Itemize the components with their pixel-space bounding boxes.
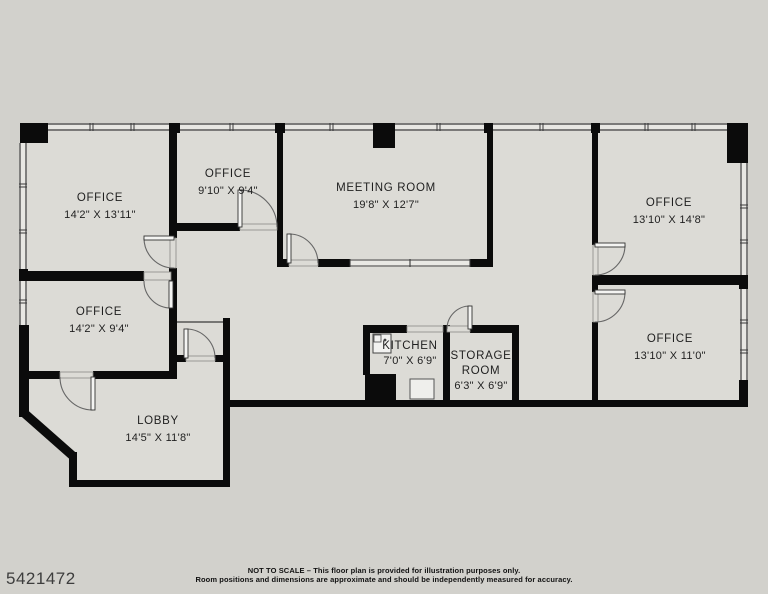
room-label-kitchen: KITCHEN 7'0" X 6'9" <box>367 339 453 369</box>
room-dims: 9'10" X 9'4" <box>158 183 298 200</box>
room-label-office-4: OFFICE 14'2" X 9'4" <box>29 304 169 338</box>
room-label-lobby: LOBBY 14'5" X 11'8" <box>98 413 218 447</box>
room-dims: 14'2" X 13'11" <box>30 207 170 224</box>
disclaimer: NOT TO SCALE – This floor plan is provid… <box>0 567 768 584</box>
room-name: STORAGE ROOM <box>443 349 519 379</box>
room-label-office-2: OFFICE 9'10" X 9'4" <box>158 166 298 200</box>
room-dims: 14'5" X 11'8" <box>98 430 218 447</box>
room-dims: 7'0" X 6'9" <box>367 354 453 369</box>
floor-plan-drawing <box>0 0 768 594</box>
room-name: KITCHEN <box>367 339 453 354</box>
room-dims: 19'8" X 12'7" <box>296 197 476 214</box>
kitchen-appliance-icon <box>410 379 434 399</box>
room-dims: 6'3" X 6'9" <box>443 379 519 394</box>
room-name: OFFICE <box>29 304 169 321</box>
room-dims: 13'10" X 14'8" <box>599 212 739 229</box>
glass-partition <box>350 259 470 267</box>
room-name: LOBBY <box>98 413 218 430</box>
room-name: OFFICE <box>158 166 298 183</box>
room-label-office-1: OFFICE 14'2" X 13'11" <box>30 190 170 224</box>
room-name: OFFICE <box>599 195 739 212</box>
room-name: MEETING ROOM <box>296 180 476 197</box>
floor-plan-page: OFFICE 14'2" X 13'11" OFFICE 9'10" X 9'4… <box>0 0 768 594</box>
room-dims: 13'10" X 11'0" <box>600 348 740 365</box>
room-name: OFFICE <box>30 190 170 207</box>
room-name: OFFICE <box>600 331 740 348</box>
room-label-office-5: OFFICE 13'10" X 11'0" <box>600 331 740 365</box>
room-dims: 14'2" X 9'4" <box>29 321 169 338</box>
room-label-storage-room: STORAGE ROOM 6'3" X 6'9" <box>443 349 519 394</box>
room-label-meeting-room: MEETING ROOM 19'8" X 12'7" <box>296 180 476 214</box>
room-label-office-3: OFFICE 13'10" X 14'8" <box>599 195 739 229</box>
disclaimer-line-2: Room positions and dimensions are approx… <box>0 576 768 585</box>
plan-number: 5421472 <box>6 569 76 589</box>
